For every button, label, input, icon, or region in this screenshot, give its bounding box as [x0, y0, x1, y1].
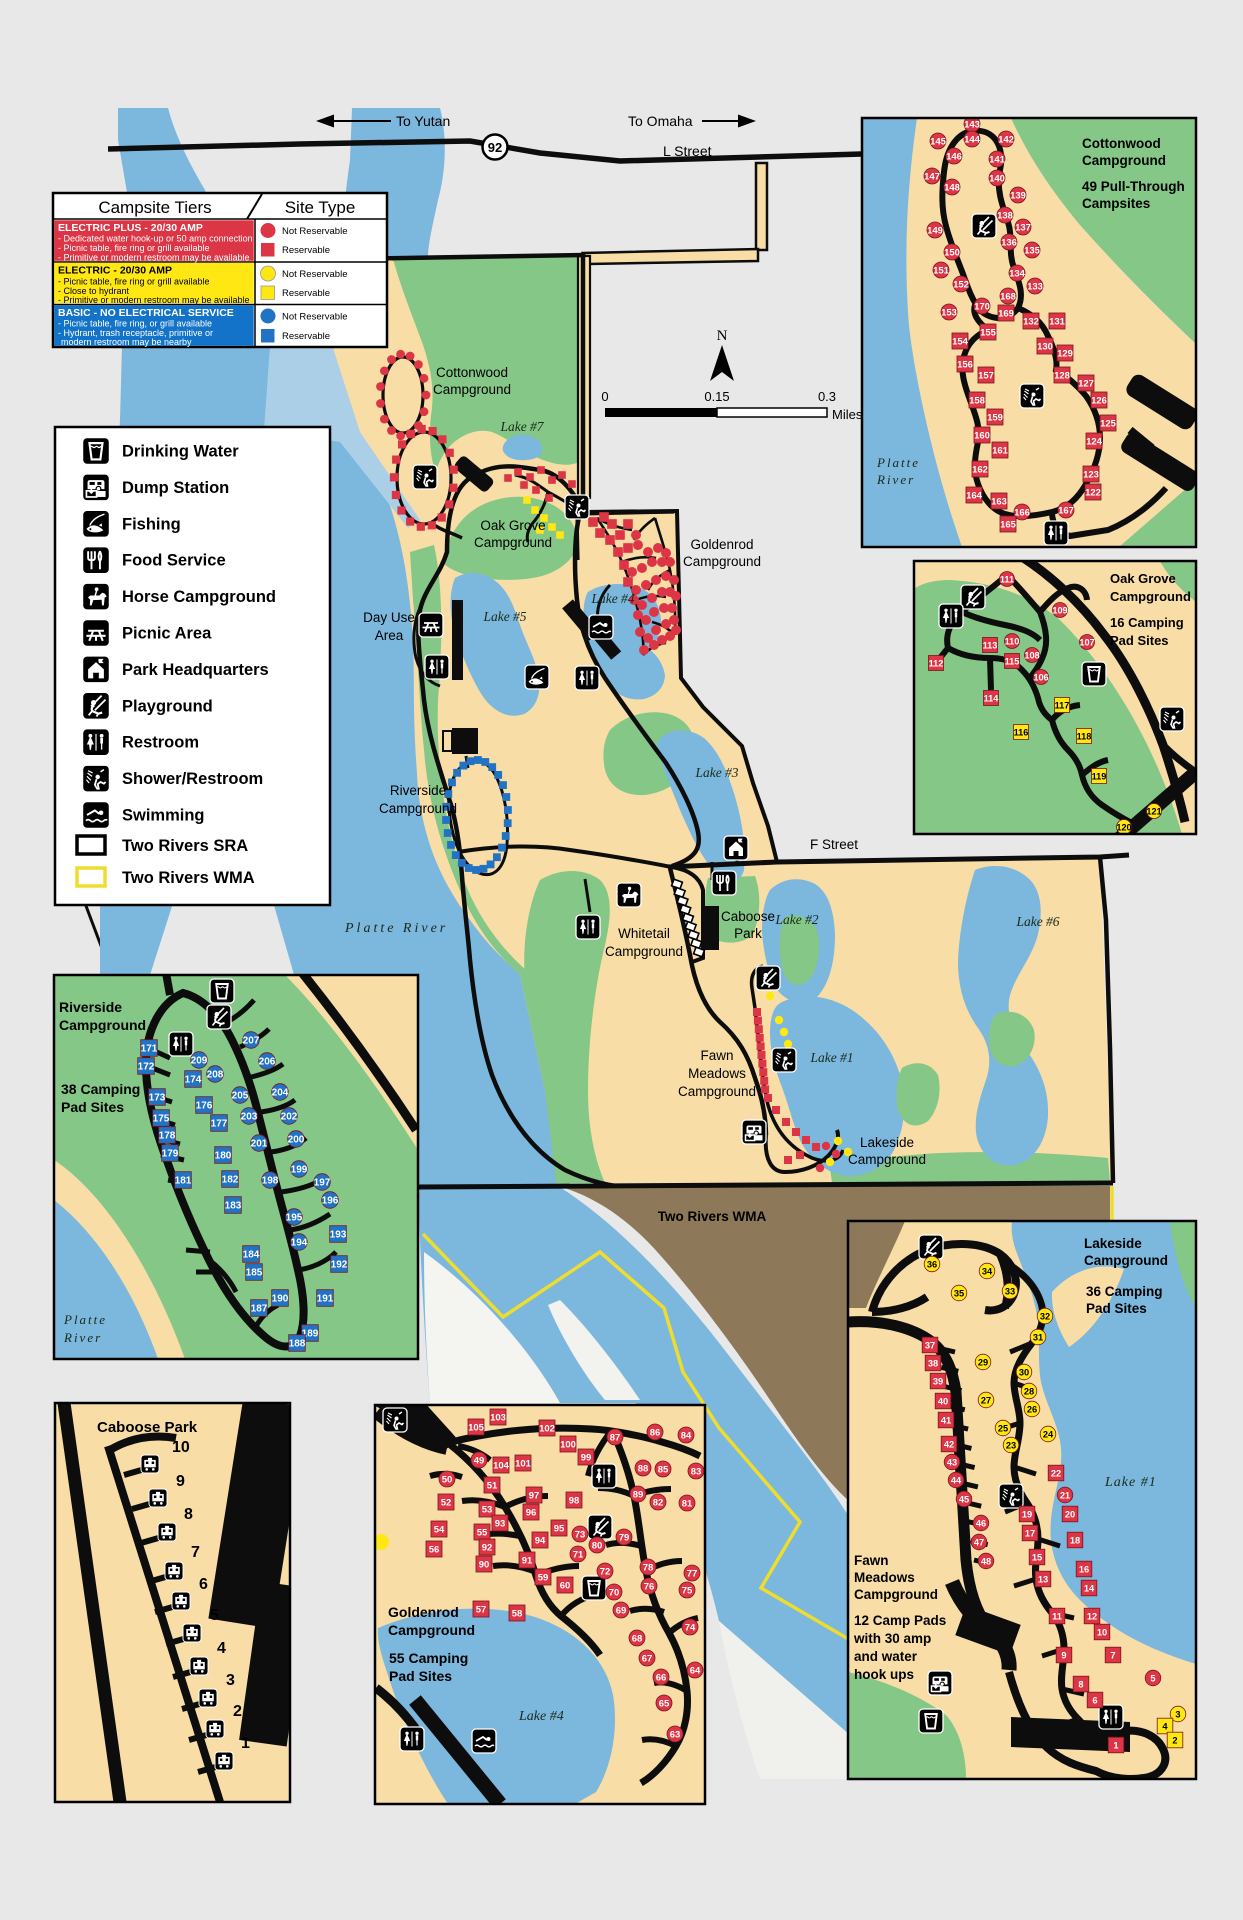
svg-text:Picnic Area: Picnic Area [122, 625, 212, 643]
svg-text:116: 116 [1014, 727, 1029, 737]
svg-text:23: 23 [1006, 1440, 1016, 1450]
svg-text:59: 59 [538, 1572, 549, 1583]
svg-text:1: 1 [241, 1735, 250, 1752]
svg-text:182: 182 [222, 1175, 239, 1186]
svg-text:163: 163 [991, 496, 1007, 507]
svg-text:27: 27 [981, 1395, 991, 1405]
svg-text:177: 177 [211, 1119, 228, 1130]
svg-text:205: 205 [232, 1091, 249, 1102]
svg-text:137: 137 [1015, 222, 1031, 233]
svg-text:Swimming: Swimming [122, 807, 205, 825]
svg-text:Reservable: Reservable [282, 288, 330, 299]
svg-text:Drinking Water: Drinking Water [122, 443, 239, 461]
svg-text:Horse Campground: Horse Campground [122, 588, 276, 606]
svg-text:153: 153 [941, 307, 957, 318]
svg-text:Platte River: Platte River [344, 921, 448, 936]
svg-text:58: 58 [512, 1608, 523, 1619]
svg-text:184: 184 [243, 1250, 260, 1261]
svg-text:135: 135 [1024, 245, 1041, 256]
svg-text:Oak Grove: Oak Grove [480, 518, 545, 533]
svg-text:Miles: Miles [832, 407, 863, 422]
svg-text:172: 172 [138, 1062, 155, 1073]
svg-text:111: 111 [1000, 574, 1014, 584]
svg-text:Oak Grove: Oak Grove [1110, 571, 1176, 586]
svg-text:160: 160 [974, 430, 990, 441]
svg-text:90: 90 [479, 1559, 490, 1570]
svg-text:208: 208 [207, 1070, 224, 1081]
svg-text:73: 73 [575, 1529, 586, 1540]
svg-text:187: 187 [251, 1304, 268, 1315]
svg-text:Shower/Restroom: Shower/Restroom [122, 770, 263, 788]
svg-text:97: 97 [529, 1490, 540, 1501]
svg-text:66: 66 [656, 1672, 667, 1683]
svg-text:To Omaha: To Omaha [628, 113, 693, 129]
svg-text:17: 17 [1025, 1528, 1035, 1538]
svg-text:Campground: Campground [1084, 1253, 1168, 1268]
svg-text:168: 168 [1000, 291, 1016, 302]
svg-text:193: 193 [330, 1230, 347, 1241]
svg-text:Pad Sites: Pad Sites [61, 1099, 124, 1115]
svg-text:10: 10 [1097, 1627, 1107, 1637]
svg-text:8: 8 [1078, 1679, 1083, 1689]
svg-text:144: 144 [964, 134, 981, 145]
svg-text:69: 69 [616, 1605, 627, 1616]
svg-text:151: 151 [933, 265, 950, 276]
svg-text:202: 202 [281, 1112, 298, 1123]
svg-text:130: 130 [1037, 341, 1053, 352]
svg-text:Cottonwood: Cottonwood [436, 365, 508, 380]
svg-text:101: 101 [515, 1458, 532, 1469]
svg-text:N: N [717, 328, 728, 344]
svg-text:107: 107 [1079, 637, 1094, 647]
svg-text:102: 102 [539, 1423, 555, 1434]
svg-text:Two Rivers WMA: Two Rivers WMA [658, 1209, 767, 1224]
svg-text:149: 149 [927, 225, 943, 236]
svg-text:71: 71 [573, 1549, 584, 1560]
svg-text:Restroom: Restroom [122, 734, 199, 752]
svg-text:56: 56 [429, 1544, 440, 1555]
svg-text:54: 54 [434, 1524, 445, 1535]
svg-text:139: 139 [1010, 190, 1026, 201]
svg-text:175: 175 [153, 1114, 170, 1125]
svg-text:Two Rivers SRA: Two Rivers SRA [122, 837, 248, 855]
svg-text:Caboose: Caboose [721, 909, 775, 924]
svg-text:51: 51 [487, 1480, 498, 1491]
svg-text:Pad Sites: Pad Sites [389, 1668, 452, 1684]
svg-text:122: 122 [1085, 487, 1101, 498]
svg-text:Caboose Park: Caboose Park [97, 1419, 198, 1436]
svg-text:80: 80 [592, 1540, 603, 1551]
svg-text:57: 57 [476, 1604, 487, 1615]
svg-text:183: 183 [225, 1201, 242, 1212]
svg-text:117: 117 [1055, 700, 1070, 710]
svg-text:63: 63 [670, 1729, 681, 1740]
svg-text:2: 2 [233, 1703, 242, 1720]
svg-text:150: 150 [944, 247, 960, 258]
svg-text:3: 3 [1175, 1709, 1180, 1719]
svg-text:35: 35 [954, 1288, 964, 1298]
svg-text:91: 91 [522, 1555, 533, 1566]
svg-text:84: 84 [681, 1430, 692, 1441]
svg-text:8: 8 [184, 1506, 193, 1523]
svg-text:43: 43 [947, 1457, 957, 1467]
svg-text:120: 120 [1116, 822, 1131, 832]
svg-text:with 30 amp: with 30 amp [853, 1631, 931, 1646]
svg-text:5: 5 [210, 1607, 219, 1624]
svg-text:164: 164 [966, 490, 983, 501]
svg-text:104: 104 [493, 1460, 510, 1471]
svg-text:78: 78 [643, 1562, 654, 1573]
svg-text:132: 132 [1023, 316, 1039, 327]
svg-text:24: 24 [1043, 1429, 1054, 1439]
svg-text:hook ups: hook ups [854, 1667, 914, 1682]
svg-text:87: 87 [610, 1432, 621, 1443]
svg-text:81: 81 [682, 1498, 693, 1509]
svg-text:176: 176 [196, 1101, 213, 1112]
svg-text:Goldenrod: Goldenrod [388, 1604, 459, 1620]
svg-text:169: 169 [998, 308, 1014, 319]
svg-text:145: 145 [930, 136, 947, 147]
svg-text:174: 174 [185, 1075, 202, 1086]
svg-text:4: 4 [1162, 1721, 1168, 1731]
svg-text:72: 72 [600, 1566, 611, 1577]
svg-text:20: 20 [1065, 1509, 1075, 1519]
svg-text:9: 9 [176, 1473, 185, 1490]
svg-text:Lake #5: Lake #5 [482, 609, 526, 624]
svg-text:76: 76 [644, 1581, 655, 1592]
svg-text:47: 47 [974, 1537, 984, 1547]
svg-text:Playground: Playground [122, 697, 213, 715]
svg-text:199: 199 [291, 1165, 308, 1176]
svg-text:40: 40 [938, 1396, 948, 1406]
svg-text:Goldenrod: Goldenrod [690, 537, 753, 552]
svg-text:26: 26 [1027, 1404, 1037, 1414]
svg-text:195: 195 [286, 1213, 303, 1224]
svg-text:92: 92 [488, 140, 502, 155]
svg-text:60: 60 [560, 1580, 571, 1591]
svg-text:159: 159 [987, 412, 1003, 423]
svg-text:105: 105 [468, 1422, 485, 1433]
svg-text:67: 67 [642, 1653, 653, 1664]
svg-text:15: 15 [1032, 1552, 1042, 1562]
svg-text:21: 21 [1060, 1490, 1070, 1500]
svg-text:Fawn: Fawn [700, 1048, 733, 1063]
svg-text:94: 94 [535, 1535, 546, 1546]
svg-text:16: 16 [1079, 1564, 1089, 1574]
svg-text:100: 100 [560, 1439, 576, 1450]
svg-text:157: 157 [978, 370, 994, 381]
svg-text:36 Camping: 36 Camping [1086, 1284, 1163, 1299]
svg-text:103: 103 [490, 1412, 506, 1423]
svg-text:44: 44 [951, 1475, 962, 1485]
svg-text:- Primitive or modern restroom: - Primitive or modern restroom may be av… [58, 295, 250, 305]
svg-text:F Street: F Street [810, 837, 858, 852]
svg-text:52: 52 [441, 1497, 452, 1508]
svg-text:Lake #4: Lake #4 [590, 591, 634, 606]
svg-text:138: 138 [997, 210, 1013, 221]
svg-text:180: 180 [215, 1151, 232, 1162]
svg-text:2: 2 [1172, 1735, 1177, 1745]
svg-text:112: 112 [929, 658, 944, 668]
svg-text:92: 92 [482, 1542, 493, 1553]
svg-text:- Picnic table, fire ring or g: - Picnic table, fire ring or grill avail… [58, 243, 210, 253]
svg-text:Food Service: Food Service [122, 552, 226, 570]
svg-text:Lake #1: Lake #1 [809, 1050, 853, 1065]
svg-text:To Yutan: To Yutan [396, 113, 450, 129]
svg-text:- Dedicated water hook-up or 5: - Dedicated water hook-up or 50 amp conn… [58, 234, 253, 244]
svg-text:25: 25 [998, 1423, 1008, 1433]
svg-text:- Picnic table, fire ring or g: - Picnic table, fire ring or grill avail… [58, 277, 210, 287]
svg-text:5: 5 [1150, 1673, 1155, 1683]
svg-text:Two Rivers WMA: Two Rivers WMA [122, 869, 255, 887]
svg-text:Campground: Campground [1082, 153, 1166, 168]
svg-text:166: 166 [1014, 507, 1030, 518]
svg-text:37: 37 [925, 1340, 935, 1350]
svg-text:7: 7 [1110, 1650, 1115, 1660]
svg-text:133: 133 [1027, 281, 1043, 292]
svg-text:Lake #6: Lake #6 [1015, 914, 1059, 929]
svg-text:188: 188 [289, 1339, 306, 1350]
svg-text:Campground: Campground [848, 1152, 926, 1167]
svg-text:Lake #4: Lake #4 [518, 1709, 564, 1724]
svg-text:Riverside: Riverside [59, 999, 122, 1015]
svg-text:32: 32 [1040, 1311, 1050, 1321]
svg-text:Campground: Campground [683, 554, 761, 569]
svg-text:Not Reservable: Not Reservable [282, 226, 347, 237]
svg-text:121: 121 [1146, 806, 1161, 816]
svg-text:Riverside: Riverside [390, 783, 446, 798]
svg-text:146: 146 [946, 151, 962, 162]
svg-text:10: 10 [172, 1439, 190, 1456]
svg-text:Campsites: Campsites [1082, 196, 1150, 211]
svg-text:0: 0 [601, 389, 608, 404]
svg-text:147: 147 [924, 171, 940, 182]
svg-text:16 Camping: 16 Camping [1110, 615, 1184, 630]
svg-text:34: 34 [982, 1266, 993, 1276]
svg-text:Lake #7: Lake #7 [499, 419, 544, 434]
svg-text:Campground: Campground [605, 944, 683, 959]
svg-text:22: 22 [1051, 1468, 1061, 1478]
svg-text:118: 118 [1077, 731, 1092, 741]
svg-text:39: 39 [933, 1376, 943, 1386]
svg-text:83: 83 [691, 1466, 702, 1477]
svg-text:148: 148 [944, 182, 960, 193]
svg-text:65: 65 [659, 1698, 670, 1709]
svg-text:49: 49 [474, 1455, 485, 1466]
svg-text:Cottonwood: Cottonwood [1082, 136, 1161, 151]
svg-text:1: 1 [1113, 1740, 1118, 1750]
svg-text:ELECTRIC PLUS - 20/30 AMP: ELECTRIC PLUS - 20/30 AMP [58, 222, 203, 234]
svg-text:29: 29 [978, 1357, 988, 1367]
svg-text:42: 42 [944, 1439, 954, 1449]
svg-text:154: 154 [952, 336, 969, 347]
svg-text:Dump Station: Dump Station [122, 479, 229, 497]
svg-text:123: 123 [1083, 469, 1099, 480]
svg-text:Lakeside: Lakeside [1084, 1236, 1142, 1251]
svg-text:201: 201 [251, 1139, 268, 1150]
svg-text:Campground: Campground [474, 535, 552, 550]
svg-text:194: 194 [291, 1238, 308, 1249]
svg-text:12 Camp Pads: 12 Camp Pads [854, 1613, 946, 1628]
svg-text:50: 50 [442, 1474, 453, 1485]
svg-text:113: 113 [983, 640, 998, 650]
svg-text:38: 38 [928, 1358, 938, 1368]
svg-text:68: 68 [632, 1633, 643, 1644]
svg-text:106: 106 [1033, 672, 1048, 682]
svg-text:Whitetail: Whitetail [618, 926, 670, 941]
svg-text:55 Camping: 55 Camping [389, 1650, 468, 1666]
svg-text:124: 124 [1086, 436, 1103, 447]
svg-text:Lake #2: Lake #2 [774, 912, 818, 927]
svg-text:Pad Sites: Pad Sites [1110, 633, 1169, 648]
svg-text:11: 11 [1052, 1611, 1062, 1621]
svg-text:River: River [876, 472, 915, 487]
svg-text:0.15: 0.15 [704, 389, 729, 404]
svg-text:Platte: Platte [63, 1312, 107, 1327]
svg-text:19: 19 [1022, 1509, 1032, 1519]
svg-text:River: River [63, 1330, 102, 1345]
svg-text:4: 4 [217, 1640, 226, 1657]
svg-text:152: 152 [953, 279, 969, 290]
svg-text:Meadows: Meadows [854, 1570, 915, 1585]
svg-text:204: 204 [272, 1088, 289, 1099]
svg-text:BASIC - NO ELECTRICAL SERVICE: BASIC - NO ELECTRICAL SERVICE [58, 307, 234, 319]
svg-text:48: 48 [981, 1556, 991, 1566]
svg-text:181: 181 [175, 1176, 192, 1187]
svg-text:114: 114 [984, 693, 1000, 703]
svg-text:161: 161 [992, 445, 1009, 456]
svg-text:171: 171 [141, 1044, 158, 1055]
svg-text:77: 77 [687, 1568, 698, 1579]
svg-text:190: 190 [272, 1294, 289, 1305]
svg-text:Site Type: Site Type [285, 198, 356, 217]
svg-text:85: 85 [658, 1464, 669, 1475]
svg-text:Campground: Campground [678, 1084, 756, 1099]
svg-text:198: 198 [262, 1176, 279, 1187]
svg-text:13: 13 [1038, 1574, 1048, 1584]
svg-text:18: 18 [1070, 1535, 1080, 1545]
svg-text:Campsite Tiers: Campsite Tiers [98, 198, 211, 217]
svg-text:30: 30 [1019, 1367, 1029, 1377]
svg-text:49 Pull-Through: 49 Pull-Through [1082, 179, 1185, 194]
svg-text:209: 209 [191, 1056, 208, 1067]
svg-text:207: 207 [243, 1036, 260, 1047]
svg-text:Platte: Platte [876, 455, 920, 470]
svg-text:173: 173 [149, 1093, 166, 1104]
svg-text:70: 70 [609, 1587, 620, 1598]
svg-text:6: 6 [1092, 1695, 1097, 1705]
svg-text:Area: Area [375, 628, 404, 643]
svg-text:140: 140 [989, 173, 1005, 184]
svg-text:196: 196 [322, 1196, 339, 1207]
svg-text:167: 167 [1058, 505, 1074, 516]
svg-text:- Primitive or modern restroom: - Primitive or modern restroom may be av… [58, 253, 250, 263]
svg-text:Fawn: Fawn [854, 1553, 889, 1568]
svg-text:206: 206 [259, 1057, 276, 1068]
svg-text:185: 185 [246, 1268, 263, 1279]
svg-text:127: 127 [1078, 378, 1094, 389]
svg-text:142: 142 [998, 134, 1014, 145]
svg-text:0.3: 0.3 [818, 389, 836, 404]
svg-text:200: 200 [288, 1135, 305, 1146]
svg-text:125: 125 [1100, 418, 1117, 429]
svg-text:131: 131 [1049, 316, 1066, 327]
svg-text:88: 88 [638, 1463, 649, 1474]
svg-text:46: 46 [976, 1518, 986, 1528]
svg-text:179: 179 [162, 1149, 179, 1160]
svg-text:126: 126 [1091, 395, 1107, 406]
svg-text:108: 108 [1024, 650, 1039, 660]
svg-text:Campground: Campground [1110, 589, 1191, 604]
svg-text:143: 143 [964, 119, 980, 130]
svg-text:Meadows: Meadows [688, 1066, 746, 1081]
svg-text:55: 55 [477, 1527, 488, 1538]
svg-text:110: 110 [1005, 636, 1020, 646]
svg-text:Not Reservable: Not Reservable [282, 269, 347, 280]
svg-text:Campground: Campground [388, 1622, 475, 1638]
svg-text:89: 89 [633, 1489, 644, 1500]
svg-text:Lake #3: Lake #3 [694, 765, 738, 780]
svg-text:158: 158 [969, 395, 985, 406]
svg-text:96: 96 [526, 1507, 537, 1518]
svg-text:modern restroom may be nearby: modern restroom may be nearby [61, 337, 192, 347]
svg-text:191: 191 [317, 1294, 334, 1305]
svg-text:9: 9 [1061, 1650, 1066, 1660]
svg-text:7: 7 [191, 1544, 200, 1561]
svg-text:and water: and water [854, 1649, 918, 1664]
svg-text:95: 95 [554, 1523, 565, 1534]
svg-text:38 Camping: 38 Camping [61, 1081, 140, 1097]
svg-text:82: 82 [653, 1497, 664, 1508]
svg-text:Fishing: Fishing [122, 515, 181, 533]
svg-text:36: 36 [927, 1259, 937, 1269]
svg-text:Campground: Campground [379, 801, 457, 816]
svg-text:6: 6 [199, 1576, 208, 1593]
svg-text:12: 12 [1087, 1611, 1097, 1621]
svg-text:L Street: L Street [663, 143, 712, 159]
svg-text:156: 156 [957, 359, 973, 370]
svg-text:128: 128 [1054, 370, 1070, 381]
svg-text:86: 86 [650, 1427, 661, 1438]
svg-text:ELECTRIC - 20/30 AMP: ELECTRIC - 20/30 AMP [58, 265, 172, 277]
svg-text:Park Headquarters: Park Headquarters [122, 661, 269, 679]
svg-text:203: 203 [241, 1112, 258, 1123]
svg-text:Pad Sites: Pad Sites [1086, 1301, 1147, 1316]
svg-text:Campground: Campground [854, 1587, 938, 1602]
svg-text:Park: Park [734, 926, 762, 941]
svg-text:98: 98 [569, 1495, 580, 1506]
svg-text:Campground: Campground [59, 1017, 146, 1033]
svg-text:129: 129 [1057, 348, 1073, 359]
svg-text:41: 41 [941, 1415, 951, 1425]
svg-text:Campground: Campground [433, 382, 511, 397]
svg-text:53: 53 [482, 1504, 493, 1515]
svg-text:119: 119 [1092, 771, 1107, 781]
svg-text:99: 99 [581, 1452, 592, 1463]
svg-text:155: 155 [980, 327, 997, 338]
svg-text:Lake #1: Lake #1 [1104, 1475, 1157, 1490]
svg-text:28: 28 [1024, 1386, 1034, 1396]
svg-text:3: 3 [226, 1672, 235, 1689]
svg-text:136: 136 [1001, 237, 1017, 248]
svg-text:Day Use: Day Use [363, 610, 415, 625]
svg-text:109: 109 [1052, 605, 1067, 615]
svg-text:33: 33 [1005, 1286, 1015, 1296]
svg-text:170: 170 [974, 301, 990, 312]
svg-text:Not Reservable: Not Reservable [282, 312, 347, 323]
svg-text:45: 45 [959, 1494, 969, 1504]
svg-text:134: 134 [1009, 268, 1026, 279]
